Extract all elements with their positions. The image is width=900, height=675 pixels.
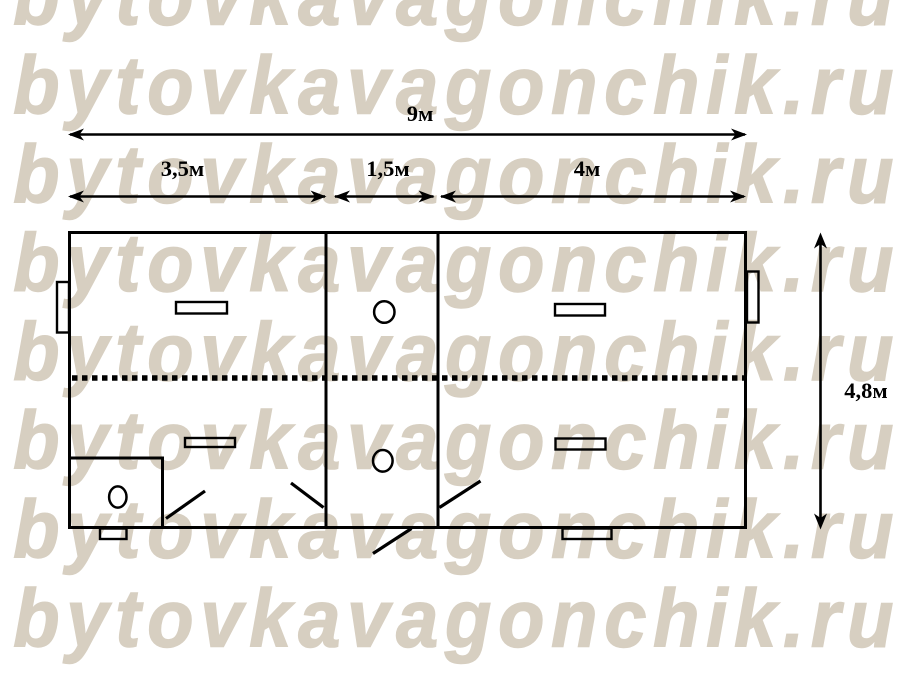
svg-text:bytovkavagonchik.ru: bytovkavagonchik.ru: [13, 129, 900, 220]
svg-text:bytovkavagonchik.ru: bytovkavagonchik.ru: [13, 0, 900, 42]
svg-text:bytovkavagonchik.ru: bytovkavagonchik.ru: [13, 40, 900, 131]
svg-text:4,8м: 4,8м: [844, 378, 887, 403]
svg-text:bytovkavagonchik.ru: bytovkavagonchik.ru: [13, 395, 900, 486]
svg-text:4м: 4м: [574, 156, 601, 181]
svg-text:9м: 9м: [407, 101, 434, 126]
svg-text:bytovkavagonchik.ru: bytovkavagonchik.ru: [13, 573, 900, 664]
svg-text:1,5м: 1,5м: [366, 156, 409, 181]
svg-text:bytovkavagonchik.ru: bytovkavagonchik.ru: [13, 306, 900, 397]
svg-text:3,5м: 3,5м: [161, 156, 204, 181]
